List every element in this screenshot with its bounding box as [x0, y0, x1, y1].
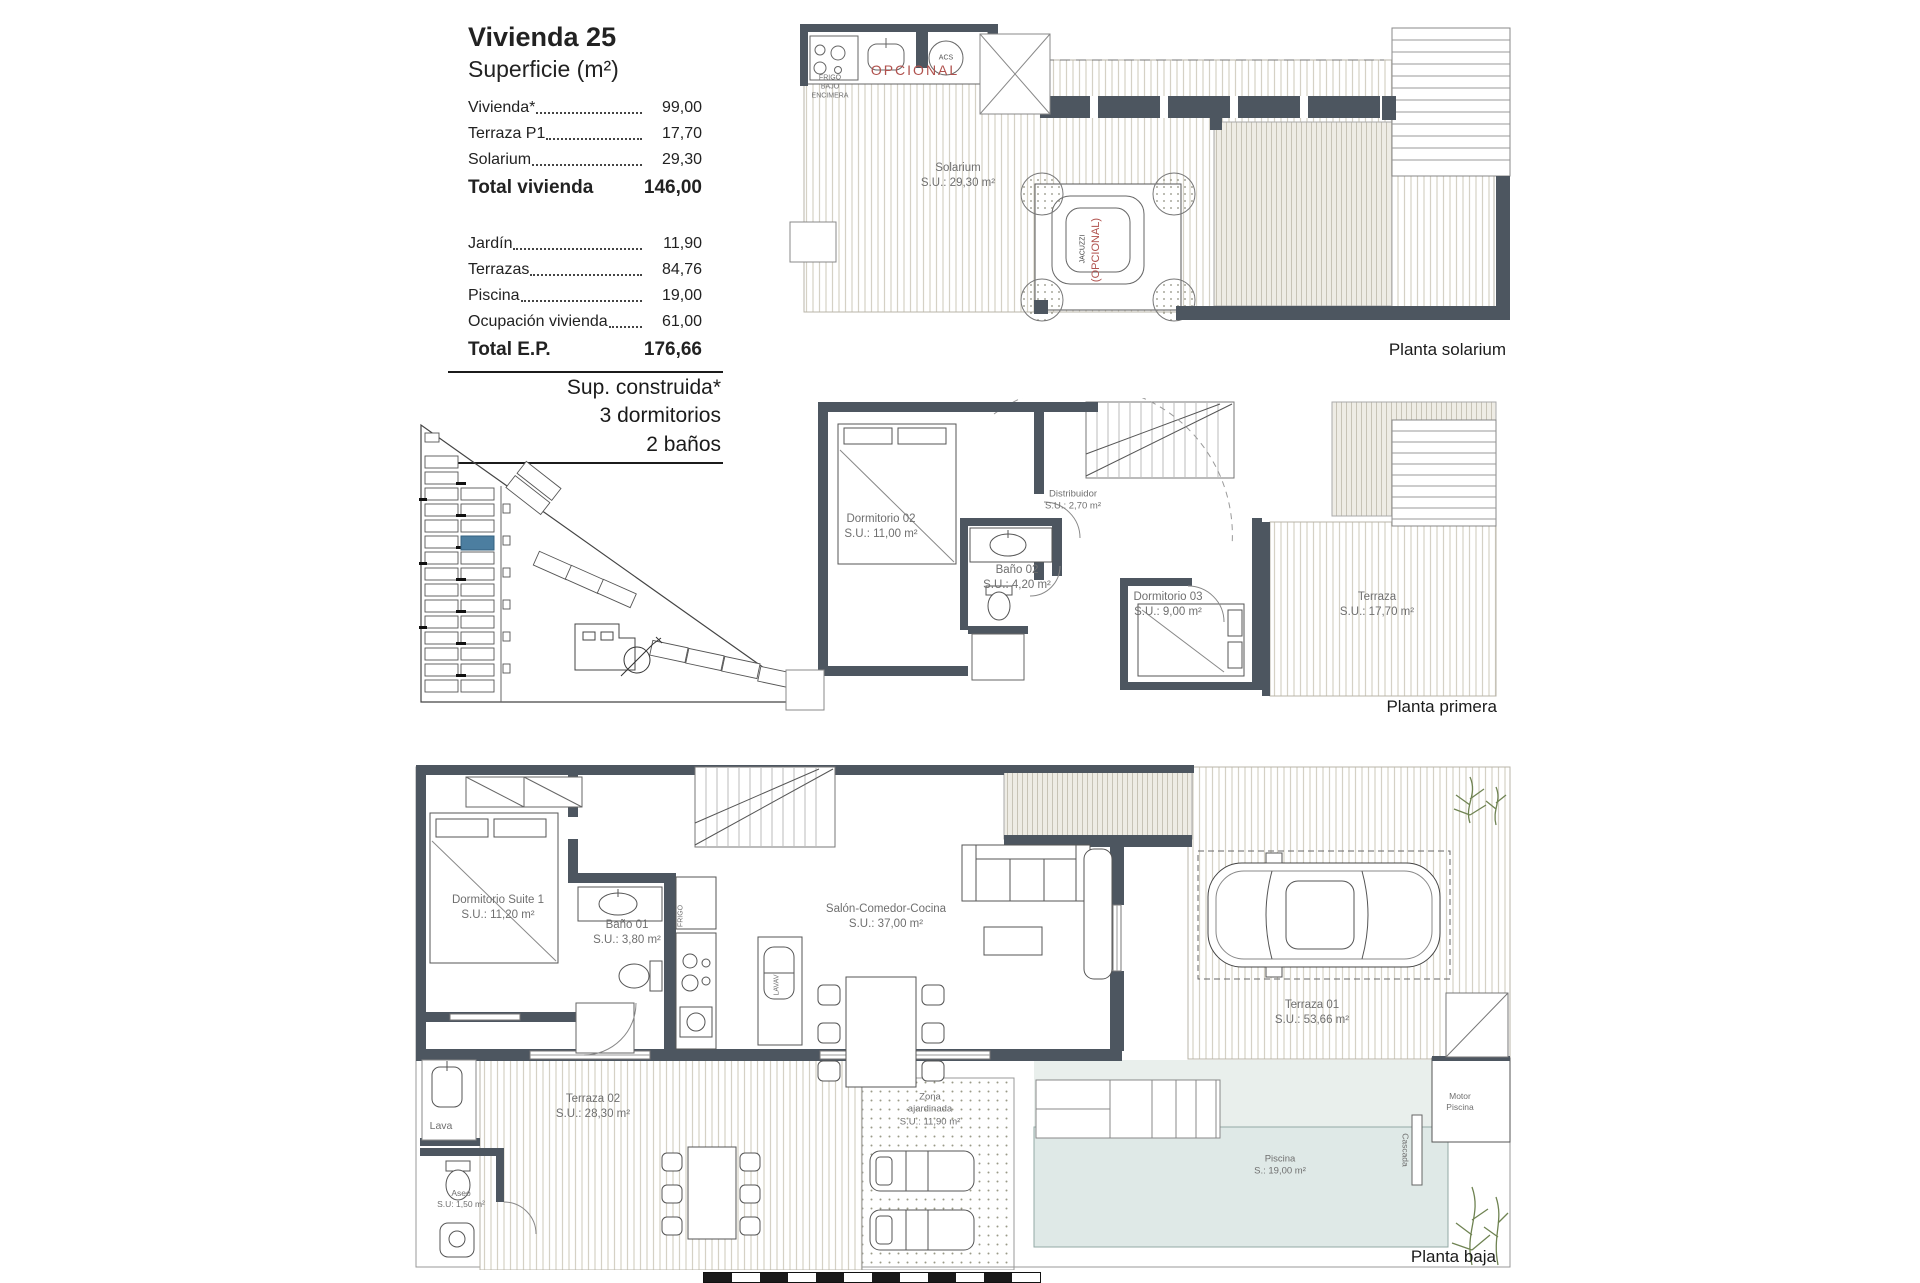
room-label-aseo: Aseo S.U: 1,50 m²	[437, 1188, 485, 1210]
row-label: Vivienda*	[468, 99, 535, 117]
row-value: 19,00	[644, 287, 702, 305]
room-area: S.U.: 37,00 m²	[826, 917, 946, 932]
surface-row: Jardín 11,90	[468, 235, 702, 253]
unit-title: Vivienda 25	[468, 22, 702, 53]
wardrobe	[466, 777, 582, 807]
room-label-bano-02: Baño 02 S.U.: 4,20 m²	[983, 563, 1051, 593]
room-name: Terraza 01	[1275, 998, 1349, 1013]
surface-row: Vivienda* 99,00	[468, 99, 702, 117]
room-label-terraza-01: Terraza 01 S.U.: 53,66 m²	[1275, 998, 1349, 1028]
garden-zone-label: Zona ajardinada S.U.: 11,90 m²	[900, 1091, 961, 1128]
lava-label: Lava	[430, 1120, 453, 1134]
room-label-bano-01: Baño 01 S.U.: 3,80 m²	[593, 918, 661, 948]
dotted-leader	[536, 112, 642, 114]
room-area: S.U.: 11,20 m²	[452, 908, 544, 923]
porch-hatch	[1004, 765, 1194, 847]
row-label: Piscina	[468, 287, 520, 305]
surface-row: Terrazas 84,76	[468, 261, 702, 279]
kitchen-counter	[676, 933, 716, 1049]
row-value: 99,00	[644, 99, 702, 117]
room-area: S.U.: 2,70 m²	[1045, 501, 1101, 513]
room-area: S.U.: 4,20 m²	[983, 578, 1051, 593]
total-label: Total E.P.	[468, 339, 551, 361]
interior-stairs	[695, 767, 835, 847]
room-name: Dormitorio 02	[844, 512, 917, 527]
room-area: S.U.: 17,70 m²	[1340, 605, 1414, 620]
carport-car	[1198, 851, 1450, 979]
dotted-leader	[532, 164, 642, 166]
surface-row: Ocupación vivienda 61,00	[468, 313, 702, 331]
dining-set	[818, 977, 944, 1087]
cascada-label: Cascada	[1399, 1133, 1410, 1167]
site-unit-rows	[425, 433, 510, 692]
room-name: Piscina	[1254, 1154, 1306, 1166]
scale-bar	[703, 1272, 1041, 1283]
site-plan	[415, 408, 815, 708]
total-ep-row: Total E.P. 176,66	[468, 339, 702, 361]
pool-area	[1034, 1060, 1448, 1247]
room-name: Baño 02	[983, 563, 1051, 578]
stairs-upper	[1392, 420, 1496, 526]
room-area: S.U.: 9,00 m²	[1133, 605, 1202, 620]
plant-icon	[1021, 173, 1063, 215]
room-name: Dormitorio Suite 1	[452, 893, 544, 908]
row-label: Terraza P1	[468, 125, 545, 143]
bed-suite	[430, 813, 558, 963]
stair-x-box	[980, 34, 1050, 114]
room-name: Terraza	[1340, 590, 1414, 605]
plant-icon	[1153, 173, 1195, 215]
dotted-leader	[546, 138, 642, 140]
frigo-line: BAJO	[812, 82, 849, 91]
total-label: Total vivienda	[468, 177, 593, 199]
room-label-dormitorio-03: Dormitorio 03 S.U.: 9,00 m²	[1133, 590, 1202, 620]
row-label: Solarium	[468, 151, 531, 169]
room-name: Aseo	[437, 1188, 485, 1199]
pool-steps	[1036, 1080, 1220, 1138]
chaise	[1084, 849, 1112, 979]
row-label: Terrazas	[468, 261, 529, 279]
frigo-bajo-encimera-label: FRIGO BAJO ENCIMERA	[812, 73, 849, 100]
room-area: S.U.: 11,00 m²	[844, 527, 917, 542]
pergola-beam	[1040, 96, 1380, 118]
surface-row: Piscina 19,00	[468, 287, 702, 305]
surface-row: Terraza P1 17,70	[468, 125, 702, 143]
caption-planta-primera: Planta primera	[1386, 697, 1497, 717]
shower	[576, 1003, 636, 1055]
balcony-box	[790, 222, 836, 262]
room-label-solarium: Solarium S.U.: 29,30 m²	[921, 161, 995, 191]
motor-line: Motor	[1446, 1091, 1473, 1102]
zone-line: ajardinada	[900, 1104, 961, 1116]
vanity-bano-02	[970, 528, 1052, 562]
room-label-suite: Dormitorio Suite 1 S.U.: 11,20 m²	[452, 893, 544, 923]
dotted-leader	[609, 326, 642, 328]
zone-line: Zona	[900, 1091, 961, 1103]
built-line: Sup. construida*	[450, 374, 721, 402]
room-name: Baño 01	[593, 918, 661, 933]
room-label-dormitorio-02: Dormitorio 02 S.U.: 11,00 m²	[844, 512, 917, 542]
zone-area: S.U.: 11,90 m²	[900, 1116, 961, 1128]
room-label-distribuidor: Distribuidor S.U.: 2,70 m²	[1045, 489, 1101, 514]
motor-line: Piscina	[1446, 1102, 1473, 1113]
opcional-label: OPCIONAL	[871, 61, 959, 79]
total-value: 176,66	[644, 339, 702, 361]
frigo-line: FRIGO	[812, 73, 849, 82]
toilet-icon	[619, 961, 662, 991]
row-value: 29,30	[644, 151, 702, 169]
dotted-leader	[521, 300, 642, 302]
info-panel: Vivienda 25 Superficie (m²) Vivienda* 99…	[468, 22, 702, 373]
stairwell-hatch	[1214, 122, 1392, 306]
surface-row: Solarium 29,30	[468, 151, 702, 169]
jacuzzi-opcional-label: (OPCIONAL)	[1089, 218, 1103, 282]
total-vivienda-row: Total vivienda 146,00	[468, 177, 702, 199]
coffee-table	[984, 927, 1042, 955]
surface-heading: Superficie (m²)	[468, 56, 702, 83]
room-area: S.U.: 28,30 m²	[556, 1107, 630, 1122]
spacer	[468, 211, 702, 235]
row-value: 11,90	[644, 235, 702, 253]
room-label-terraza-02: Terraza 02 S.U.: 28,30 m²	[556, 1092, 630, 1122]
highlighted-unit-25	[461, 536, 494, 550]
site-units-rotated	[506, 461, 796, 688]
room-label-terraza-p1: Terraza S.U.: 17,70 m²	[1340, 590, 1414, 620]
caption-planta-solarium: Planta solarium	[1389, 340, 1506, 360]
room-name: Solarium	[921, 161, 995, 176]
vanity-bano-01	[578, 887, 662, 921]
shower-tray	[972, 634, 1024, 680]
acs-label: ACS	[939, 53, 953, 62]
spacer	[551, 339, 644, 361]
room-label-salon: Salón-Comedor-Cocina S.U.: 37,00 m²	[826, 902, 946, 932]
room-name: Salón-Comedor-Cocina	[826, 902, 946, 917]
room-area: S.U.: 29,30 m²	[921, 176, 995, 191]
frigo-line: ENCIMERA	[812, 92, 849, 101]
spacer	[593, 177, 644, 199]
dotted-leader	[530, 274, 642, 276]
row-value: 17,70	[644, 125, 702, 143]
jacuzzi-label: JACUZZI	[1078, 235, 1087, 264]
room-area: S.U.: 3,80 m²	[593, 933, 661, 948]
site-clubhouse	[575, 624, 635, 670]
plan-primera-drawing	[784, 398, 1512, 716]
jacuzzi	[1021, 173, 1195, 321]
sofa	[962, 845, 1090, 901]
frigo-label: FRIGO	[676, 905, 685, 927]
outdoor-dining-set	[662, 1147, 760, 1239]
total-value: 146,00	[644, 177, 702, 199]
row-value: 61,00	[644, 313, 702, 331]
row-value: 84,76	[644, 261, 702, 279]
cascada-wall	[1412, 1115, 1422, 1185]
stairs-upper	[1392, 28, 1510, 176]
bed-dormitorio-02	[838, 424, 956, 564]
row-label: Jardín	[468, 235, 512, 253]
lavav-label: LAVAV	[772, 974, 781, 995]
interior-stairs	[1086, 402, 1234, 478]
dotted-leader	[513, 248, 642, 250]
caption-planta-baja: Planta baja	[1411, 1247, 1496, 1267]
room-name: Dormitorio 03	[1133, 590, 1202, 605]
room-name: Distribuidor	[1045, 489, 1101, 501]
room-area: S.: 19,00 m²	[1254, 1166, 1306, 1178]
balcony-box	[786, 670, 824, 710]
room-area: S.U.: 53,66 m²	[1275, 1013, 1349, 1028]
motor-piscina-label: Motor Piscina	[1446, 1091, 1473, 1113]
room-label-piscina: Piscina S.: 19,00 m²	[1254, 1154, 1306, 1179]
room-area: S.U: 1,50 m²	[437, 1199, 485, 1210]
row-label: Ocupación vivienda	[468, 313, 608, 331]
room-name: Terraza 02	[556, 1092, 630, 1107]
